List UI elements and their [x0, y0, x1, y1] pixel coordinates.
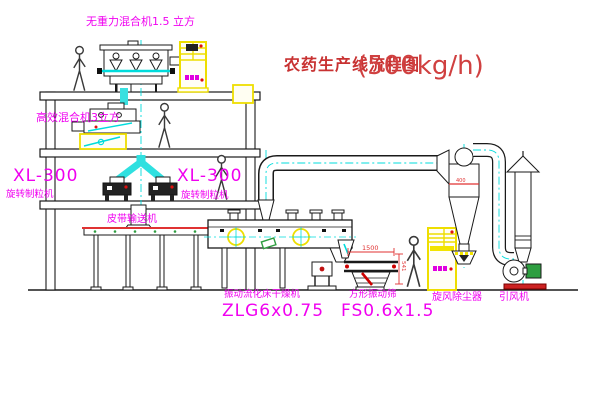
bucket-elevator-top — [178, 42, 208, 92]
drop-pipe — [120, 88, 128, 105]
granulator-right-name-label: 旋转制粒机 — [181, 189, 229, 201]
cad-flow-diagram: 无重力混合机1.5 立方 高效混合机3立方 XL-300 旋转制粒机 XL-30… — [0, 0, 600, 403]
sieve-name-label: 方形振动筛 — [349, 288, 397, 300]
gravity-free-mixer-label: 无重力混合机1.5 立方 — [86, 14, 195, 28]
sieve-model-label: FS0.6x1.5 — [341, 301, 434, 321]
granulator-right-model-label: XL-300 — [177, 166, 242, 186]
granulator-left-model-label: XL-300 — [13, 166, 78, 186]
cyclone-dimension-note: 400 — [456, 178, 466, 184]
dryer-name-label: 振动流化床干燥机 — [224, 288, 301, 300]
high-efficiency-mixer-label: 高效混合机3立方 — [36, 110, 120, 124]
diagram-title-capacity: (500kg/h) — [357, 51, 484, 81]
dryer-model-label: ZLG6x0.75 — [222, 301, 324, 321]
dryer-motor — [308, 262, 336, 290]
sieve-length-dimension: 1500 — [362, 244, 379, 252]
belt-conveyor-label: 皮带输送机 — [107, 212, 157, 225]
fan-label: 引风机 — [499, 290, 529, 303]
sieve-height-dimension: 541 — [400, 261, 406, 272]
cyclone-label: 旋风除尘器 — [432, 290, 482, 303]
bucket-elevator-right — [428, 228, 456, 290]
granulator-left-name-label: 旋转制粒机 — [6, 188, 54, 200]
diagram-canvas: 无重力混合机1.5 立方 高效混合机3立方 XL-300 旋转制粒机 XL-30… — [0, 0, 600, 403]
control-box — [233, 85, 253, 103]
